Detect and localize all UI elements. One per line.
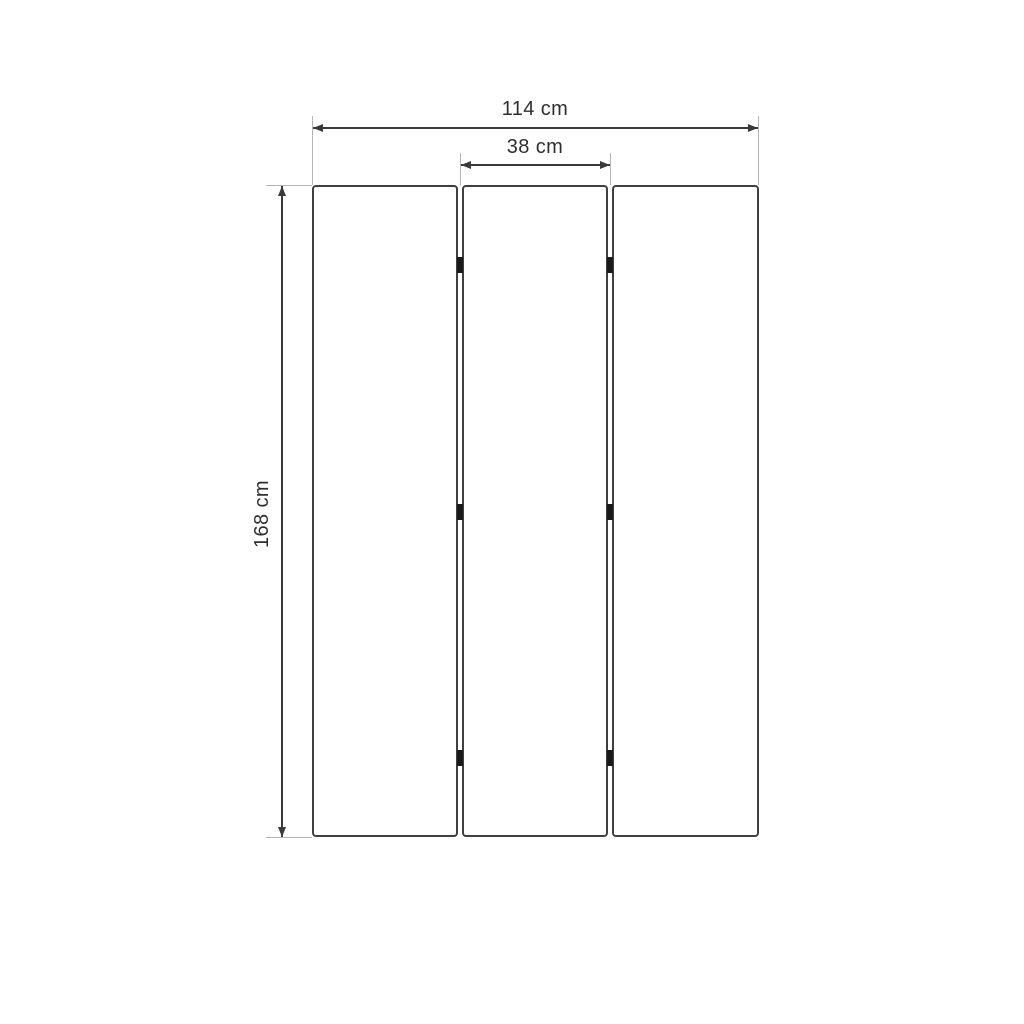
height-label: 168 cm bbox=[250, 434, 274, 594]
dimension-diagram: 114 cm 38 cm 168 cm bbox=[0, 0, 1024, 1024]
arrowhead-down-icon bbox=[278, 827, 286, 837]
hinge-mark bbox=[457, 750, 463, 766]
arrowhead-right-icon bbox=[748, 124, 758, 132]
total-width-label: 114 cm bbox=[435, 97, 635, 121]
arrowhead-up-icon bbox=[278, 186, 286, 196]
arrowhead-right-icon bbox=[600, 161, 610, 169]
hinge-mark bbox=[607, 504, 613, 520]
hinge-mark bbox=[607, 257, 613, 273]
extension-line-height-top bbox=[266, 185, 312, 186]
hinge-mark bbox=[457, 257, 463, 273]
dimension-line-height bbox=[281, 186, 283, 837]
panel-left bbox=[312, 185, 458, 837]
panel-middle bbox=[462, 185, 608, 837]
extension-line-total-width-right bbox=[758, 116, 759, 185]
arrowhead-left-icon bbox=[461, 161, 471, 169]
panel-width-label: 38 cm bbox=[445, 135, 625, 159]
arrowhead-left-icon bbox=[313, 124, 323, 132]
hinge-mark bbox=[457, 504, 463, 520]
dimension-line-total-width bbox=[313, 127, 758, 129]
hinge-mark bbox=[607, 750, 613, 766]
panel-right bbox=[612, 185, 759, 837]
extension-line-height-bottom bbox=[266, 837, 312, 838]
dimension-line-panel-width bbox=[461, 164, 610, 166]
